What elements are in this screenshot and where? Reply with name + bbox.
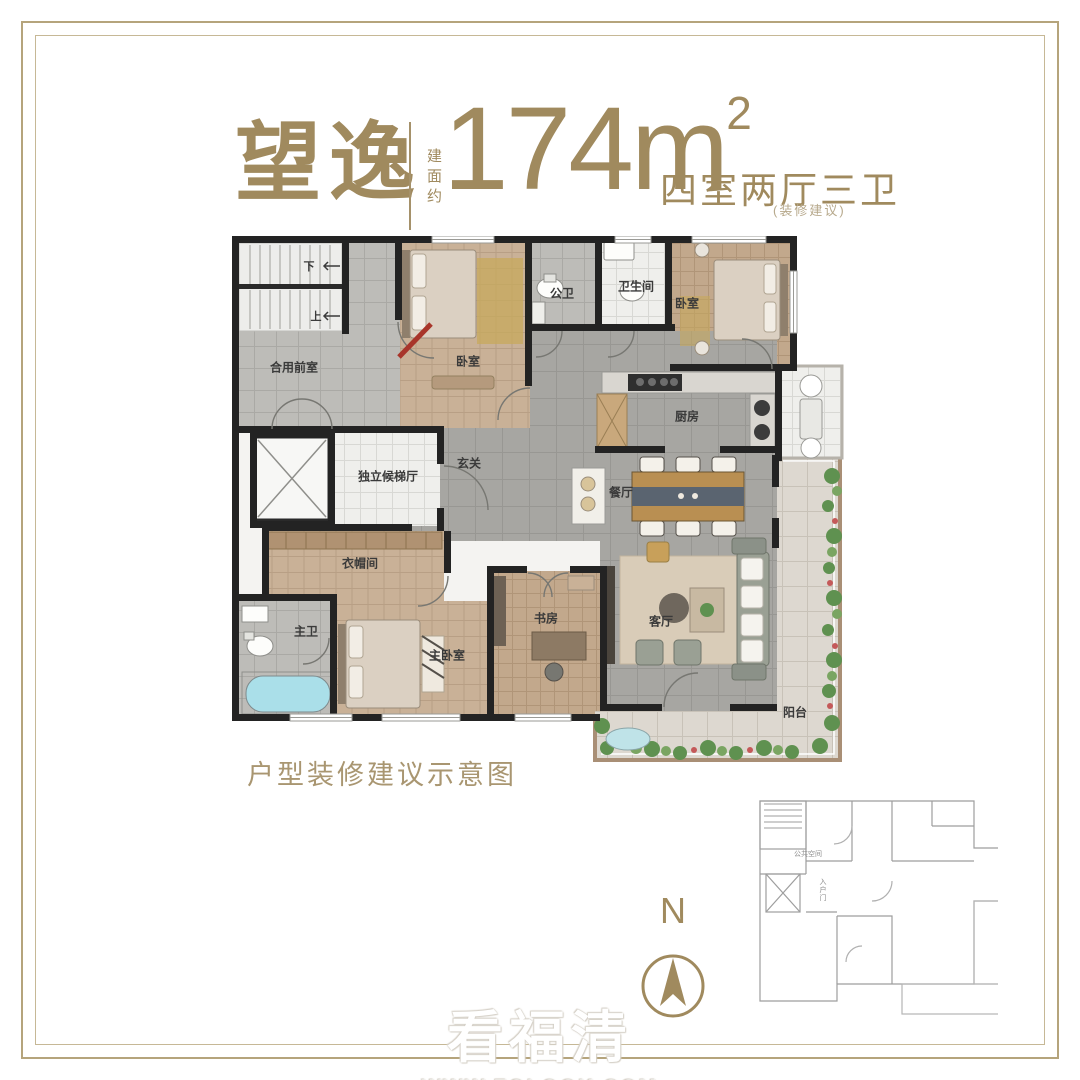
floor-plan-drawing [232, 236, 877, 766]
room-label-bathroom: 卫生间 [618, 278, 654, 295]
room-label-master-bathroom: 主卫 [294, 623, 318, 640]
room-label-balcony: 阳台 [783, 704, 807, 721]
room-label-elevator-hall: 独立候梯厅 [358, 468, 418, 485]
room-label-living-room: 客厅 [649, 613, 673, 630]
room-label-stair-down: 下 [304, 258, 315, 274]
room-label-stair-up: 上 [311, 308, 322, 324]
room-label-bedroom-top-right: 卧室 [675, 295, 699, 312]
area-prefix-label: 建面约 [423, 148, 444, 208]
floor-plan: 下 上 合用前室 卧室 公卫 卫生间 卧室 厨房 独立候梯厅 玄关 餐厅 衣帽间… [232, 236, 877, 766]
room-label-shared-front-room: 合用前室 [270, 359, 318, 376]
watermark: 看福清 WWW.FQLOOK.COM [422, 993, 659, 1080]
decoration-note: (装修建议) [773, 200, 846, 219]
area-superscript: 2 [726, 87, 752, 139]
room-label-cloakroom: 衣帽间 [342, 555, 378, 572]
room-label-public-bathroom: 公卫 [550, 285, 574, 302]
page-title: 望逸 [235, 120, 423, 206]
plan-caption: 户型装修建议示意图 [247, 753, 517, 792]
room-label-study: 书房 [534, 610, 558, 627]
room-label-master-bedroom: 主卧室 [429, 647, 465, 664]
room-label-foyer: 玄关 [457, 455, 481, 472]
watermark-site-name: 看福清 [422, 993, 659, 1074]
title-divider [409, 122, 411, 230]
room-label-bedroom-top-left: 卧室 [456, 353, 480, 370]
area-number: 174 [443, 83, 631, 215]
poster-canvas: 望逸 建面约 174m2 四室两厅三卫 (装修建议) [0, 0, 1080, 1080]
compass-north-label: N [628, 893, 718, 929]
key-plan: 公共空间 入户门 [742, 786, 998, 1038]
room-label-kitchen: 厨房 [675, 408, 699, 425]
keyplan-label-public-space: 公共空间 [794, 849, 822, 859]
keyplan-label-entry-door: 入户门 [817, 878, 827, 902]
room-label-dining-room: 餐厅 [609, 484, 633, 501]
key-plan-drawing [742, 786, 998, 1038]
watermark-site-url: WWW.FQLOOK.COM [422, 1076, 659, 1080]
